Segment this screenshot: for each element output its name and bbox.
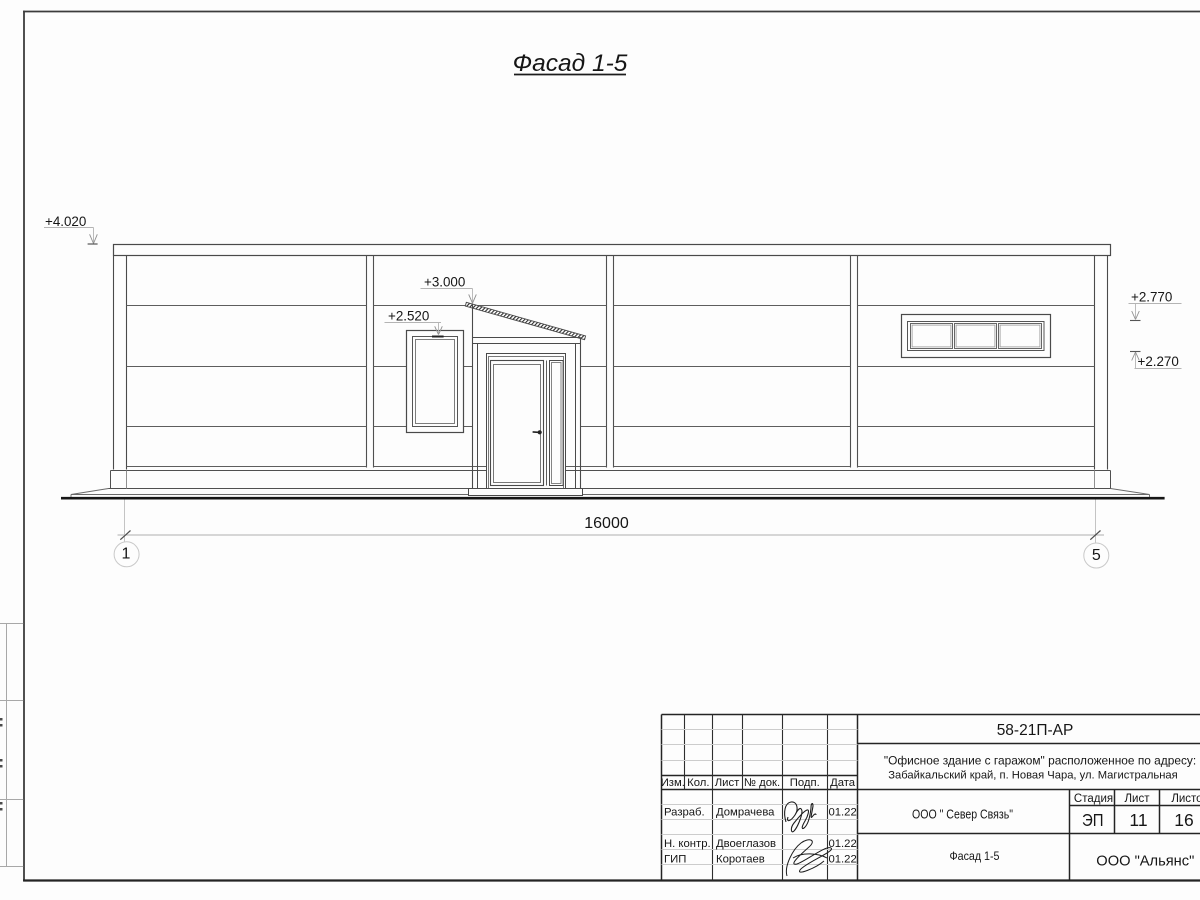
- svg-text:Кол.: Кол.: [687, 777, 709, 789]
- svg-text:Изм.: Изм.: [661, 777, 685, 789]
- svg-text:Лист: Лист: [715, 777, 740, 789]
- svg-text:Лист: Лист: [1125, 793, 1151, 805]
- svg-text:№ док.: № док.: [744, 777, 780, 789]
- svg-text:+2.270: +2.270: [1138, 354, 1179, 369]
- svg-text:11: 11: [1129, 810, 1147, 830]
- svg-text:Подп.: Подп.: [790, 777, 820, 789]
- svg-text:Дата: Дата: [830, 777, 856, 789]
- svg-text:ООО "Альянс": ООО "Альянс": [1096, 853, 1194, 870]
- svg-text:Коротаев: Коротаев: [716, 853, 765, 865]
- svg-text:01.22: 01.22: [828, 806, 856, 818]
- svg-text:16000: 16000: [584, 515, 629, 532]
- svg-text:Н. контр.: Н. контр.: [664, 838, 711, 850]
- svg-text:ГИП: ГИП: [664, 853, 686, 865]
- svg-text:ООО " Север Связь": ООО " Север Связь": [912, 807, 1013, 822]
- svg-text:Забайкальский край, п. Новая Ч: Забайкальский край, п. Новая Чара, ул. М…: [888, 769, 1177, 781]
- svg-text:+3.000: +3.000: [424, 274, 465, 289]
- svg-text:58-21П-АР: 58-21П-АР: [997, 722, 1074, 739]
- svg-text:Фасад 1-5: Фасад 1-5: [950, 849, 1000, 863]
- svg-text:+2.520: +2.520: [388, 308, 429, 323]
- svg-text:Разраб.: Разраб.: [664, 806, 705, 818]
- svg-text:Листов: Листов: [1171, 793, 1200, 805]
- svg-text:Домрачева: Домрачева: [716, 806, 775, 818]
- svg-text:ЭП: ЭП: [1082, 810, 1104, 830]
- svg-text:01.22: 01.22: [828, 853, 856, 865]
- svg-text:16: 16: [1174, 810, 1193, 830]
- svg-text:Стадия: Стадия: [1074, 793, 1113, 805]
- svg-text:5: 5: [1092, 547, 1101, 564]
- svg-text:+4.020: +4.020: [45, 214, 86, 229]
- svg-text:Двоеглазов: Двоеглазов: [716, 838, 776, 850]
- svg-text:"Офисное здание с гаражом" рас: "Офисное здание с гаражом" расположенное…: [884, 753, 1196, 767]
- svg-text:Фасад 1-5: Фасад 1-5: [513, 50, 628, 77]
- svg-text:01.22: 01.22: [828, 838, 856, 850]
- svg-text:1: 1: [122, 546, 131, 563]
- svg-text:+2.770: +2.770: [1131, 290, 1172, 305]
